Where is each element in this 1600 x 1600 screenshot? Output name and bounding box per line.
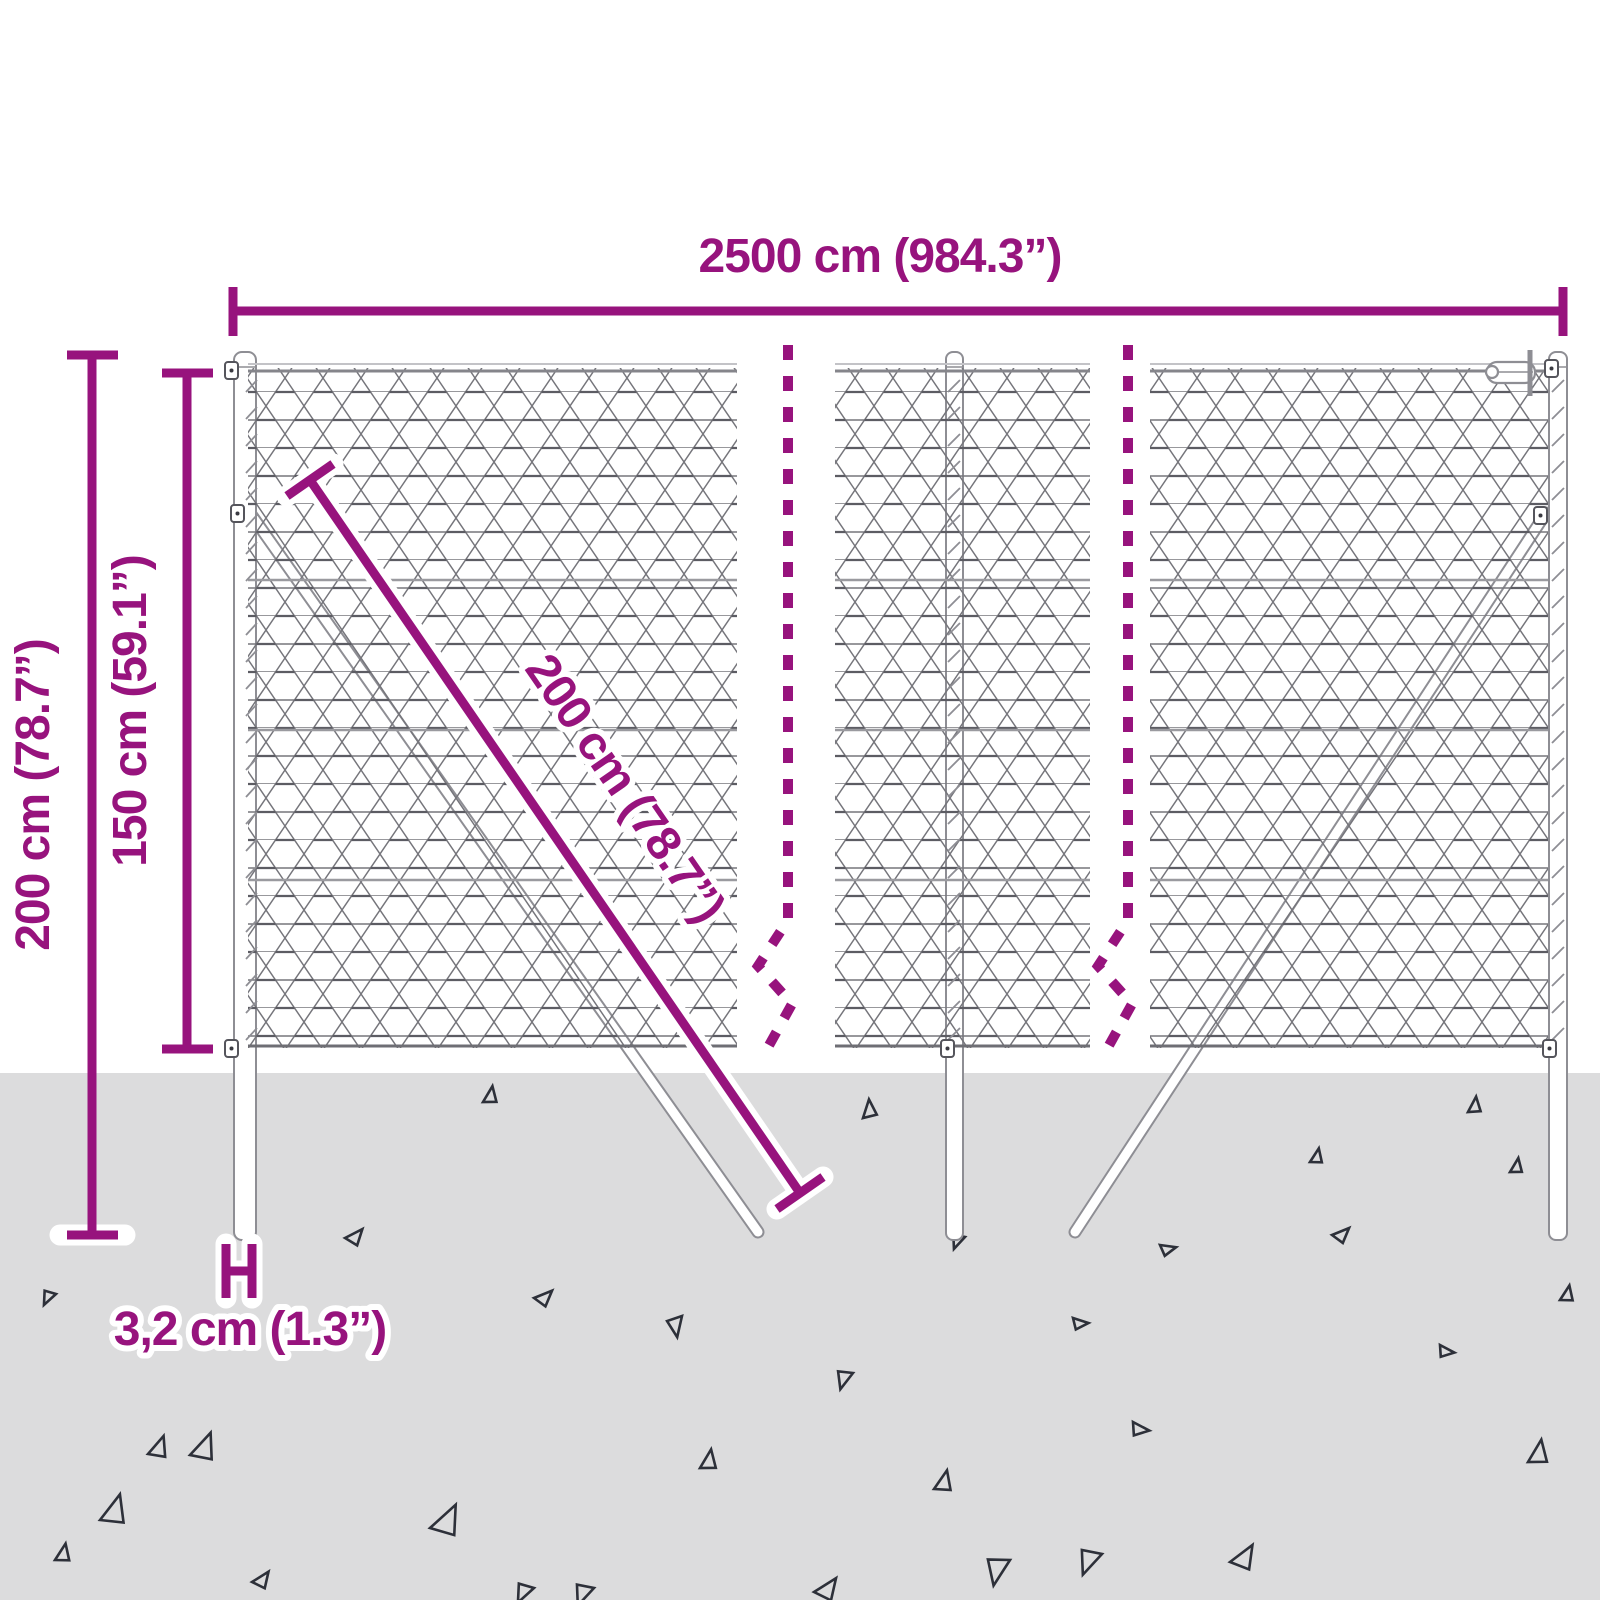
fence-dimension-diagram: 2500 cm (984.3”) 200 cm (78.7”) 150 cm (… (0, 0, 1600, 1600)
post-right (1549, 352, 1567, 1240)
post-diameter-dimension-label: 3,2 cm (1.3”) (114, 1303, 386, 1356)
break-line-right (1098, 345, 1132, 1058)
mesh-panel-2 (835, 368, 1090, 1048)
width-dimension: 2500 cm (984.3”) (233, 230, 1563, 336)
fence-height-dimension-label: 150 cm (59.1”) (104, 555, 157, 867)
break-line-left (758, 345, 792, 1058)
fence-height-dimension: 150 cm (59.1”) (104, 373, 213, 1049)
width-dimension-label: 2500 cm (984.3”) (699, 230, 1062, 283)
product-dimension-image: 2500 cm (984.3”) 200 cm (78.7”) 150 cm (… (0, 0, 1600, 1600)
mesh-panel-3 (1150, 368, 1548, 1048)
total-height-dimension-label: 200 cm (78.7”) (7, 639, 60, 951)
mesh-panels (248, 368, 1548, 1048)
